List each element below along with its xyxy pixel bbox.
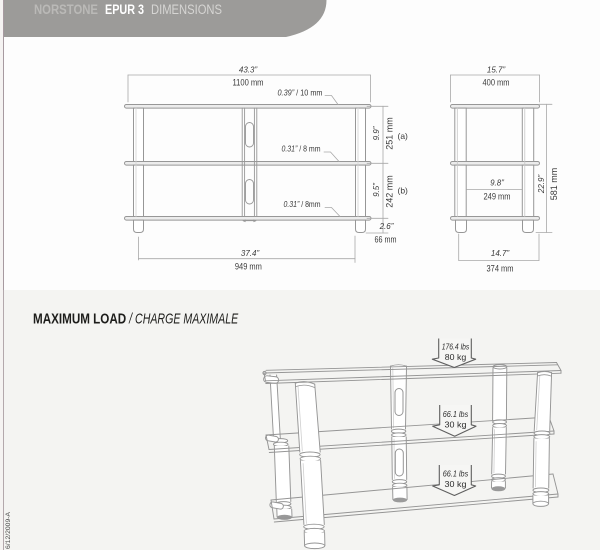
- svg-text:0.31” / 8 mm: 0.31” / 8 mm: [282, 144, 321, 154]
- svg-text:9.8”: 9.8”: [490, 179, 504, 188]
- svg-text:NORSTONE: NORSTONE: [34, 2, 98, 18]
- svg-text:66 mm: 66 mm: [375, 235, 397, 245]
- svg-text:80 kg: 80 kg: [445, 352, 467, 362]
- svg-text:66.1 lbs: 66.1 lbs: [443, 409, 469, 419]
- svg-text:0.39” / 10 mm: 0.39” / 10 mm: [278, 88, 323, 98]
- svg-text:9.9”: 9.9”: [372, 126, 381, 140]
- svg-text:EPUR 3: EPUR 3: [105, 2, 144, 18]
- svg-text:2.6”: 2.6”: [379, 222, 394, 231]
- svg-text:MAXIMUM LOAD / CHARGE MAXIMALE: MAXIMUM LOAD / CHARGE MAXIMALE: [33, 311, 239, 327]
- svg-text:251 mm: 251 mm: [384, 117, 394, 150]
- svg-text:22.9”: 22.9”: [537, 175, 546, 195]
- svg-text:176.4 lbs: 176.4 lbs: [442, 342, 470, 352]
- svg-text:9.5”: 9.5”: [372, 183, 381, 197]
- svg-text:400 mm: 400 mm: [483, 78, 510, 88]
- svg-text:15.7”: 15.7”: [487, 66, 506, 75]
- svg-text:242 mm: 242 mm: [384, 175, 394, 208]
- svg-text:581 mm: 581 mm: [549, 168, 559, 201]
- svg-text:949 mm: 949 mm: [235, 262, 262, 272]
- svg-text:30 kg: 30 kg: [445, 479, 467, 489]
- svg-text:6/12/2009-A: 6/12/2009-A: [5, 511, 12, 549]
- svg-text:DIMENSIONS: DIMENSIONS: [151, 2, 222, 18]
- svg-text:(a): (a): [398, 131, 409, 141]
- svg-text:14.7”: 14.7”: [491, 249, 510, 258]
- svg-text:249 mm: 249 mm: [484, 192, 511, 202]
- svg-text:30 kg: 30 kg: [445, 420, 467, 430]
- svg-text:66.1 lbs: 66.1 lbs: [443, 469, 469, 479]
- svg-text:1100 mm: 1100 mm: [233, 78, 264, 88]
- svg-text:374 mm: 374 mm: [487, 264, 514, 274]
- svg-text:(b): (b): [398, 185, 409, 195]
- svg-text:43.3”: 43.3”: [239, 66, 258, 75]
- svg-text:0.31” / 8mm: 0.31” / 8mm: [284, 199, 321, 209]
- svg-text:37.4”: 37.4”: [241, 249, 260, 258]
